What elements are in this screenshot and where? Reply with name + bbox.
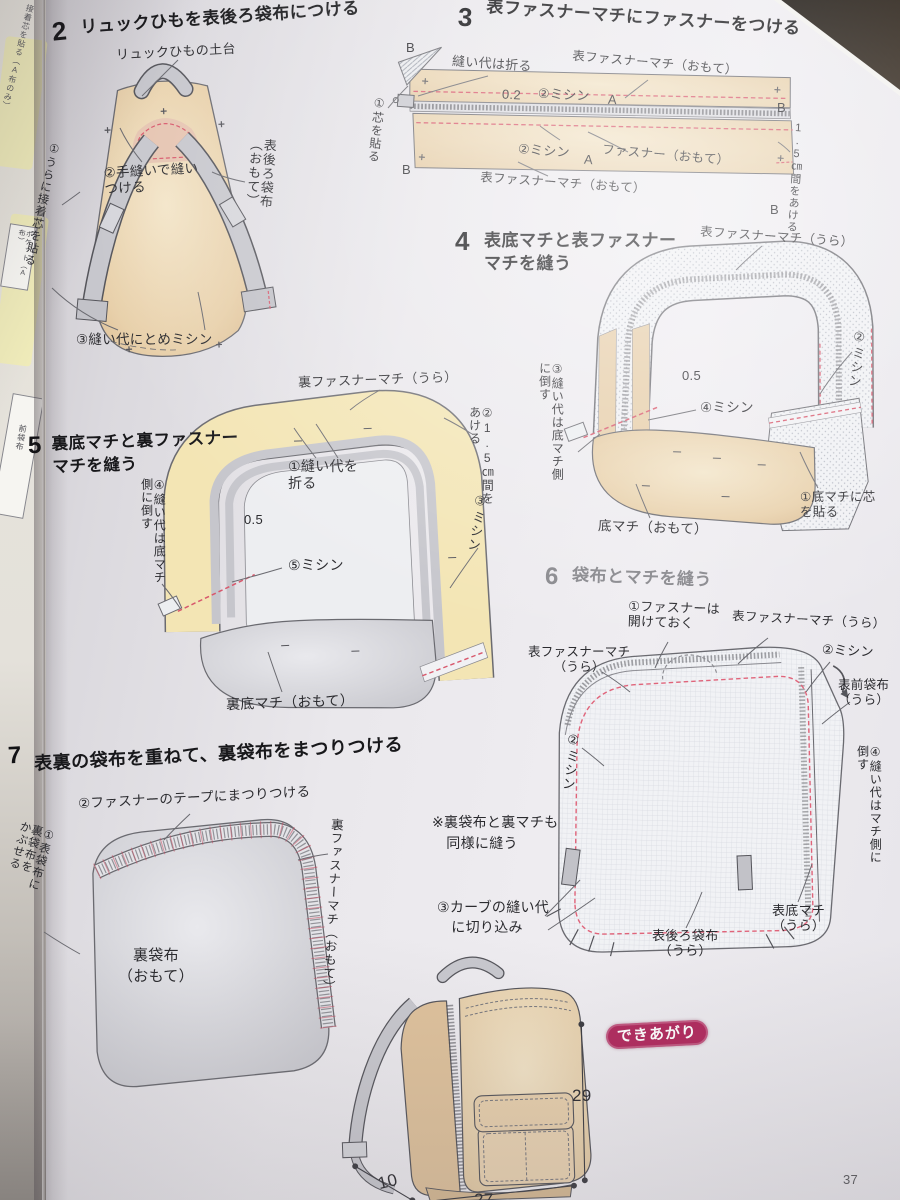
step4-title: 表底マチと表ファスナー マチを縫う [484, 230, 677, 276]
step6-number: 6 [545, 563, 560, 592]
book-page-photo: 接着芯を貼る（A布のみ） ポケット（A布） 前袋布 [0, 0, 900, 1200]
step4-press-label: ③縫い代は底マチ側 に倒す [538, 362, 563, 522]
step6-front-fabric-label: 表前袋布 （うら） [838, 678, 889, 708]
step6-gusset-left-label: 表ファスナーマチ （うら） [528, 645, 630, 675]
finished-height-dim: 29 [572, 1086, 592, 1106]
step4-gap05-label: 0.5 [682, 368, 701, 383]
step3-mark-b-tr: B [777, 100, 786, 115]
step5-stitch5-label: ⑤ミシン [288, 557, 344, 574]
step4-stitch4-label: ④ミシン [700, 400, 754, 416]
step5-fold-label: ①縫い代を 折る [288, 458, 358, 491]
step6-note-label: ※裏袋布と裏マチも 同様に縫う [432, 812, 558, 854]
step6-stitch2-right-label: ②ミシン [822, 642, 875, 660]
step3-mark-b-tl: B [406, 40, 415, 55]
step6-bottom-gusset-label: 表底マチ （うら） [772, 903, 825, 934]
step3-gap02-label: 0.2 [502, 87, 522, 103]
finished-width-dim: 27 [474, 1190, 494, 1200]
step3-mark-a-top: A [608, 92, 618, 108]
step3-mark-b-bl: B [402, 162, 411, 177]
step5-title: 裏底マチと裏ファスナー マチを縫う [51, 427, 239, 480]
step7-number: 7 [7, 742, 22, 771]
page-number: 37 [843, 1172, 858, 1187]
step5-press-label: ④縫い代は底マチ 側に倒す [140, 478, 165, 653]
step4-number: 4 [455, 226, 470, 257]
finished-badge: できあがり [605, 1019, 708, 1049]
step5-number: 5 [28, 432, 43, 461]
step6-zipper-open-label: ①ファスナーは 開けておく [627, 598, 720, 632]
step5-gap05-label: 0.5 [244, 512, 263, 527]
step6-press-label: ④縫い代はマチ側に 倒す [856, 745, 881, 895]
step7-lining-bag-label: 裏袋布 （おもて） [118, 945, 194, 987]
step3-mark-a-bottom: A [583, 152, 593, 168]
step2-tack-stitch-label: ③縫い代にとめミシン [76, 332, 213, 348]
step2-number: 2 [50, 15, 68, 47]
step3-mark-b-br: B [770, 202, 779, 217]
step6-clip-curves-label: ③カーブの縫い代 に切り込み [437, 898, 549, 937]
step3-stitch-top-label: ②ミシン [538, 86, 591, 104]
step4-interfacing-label: ①底マチに芯 を貼る [800, 490, 876, 520]
step2-hand-sew-label: ②手縫いで縫い つける [103, 161, 199, 198]
step3-number: 3 [457, 2, 473, 33]
step6-back-fabric-label: 表後ろ袋布 （うら） [652, 928, 719, 959]
